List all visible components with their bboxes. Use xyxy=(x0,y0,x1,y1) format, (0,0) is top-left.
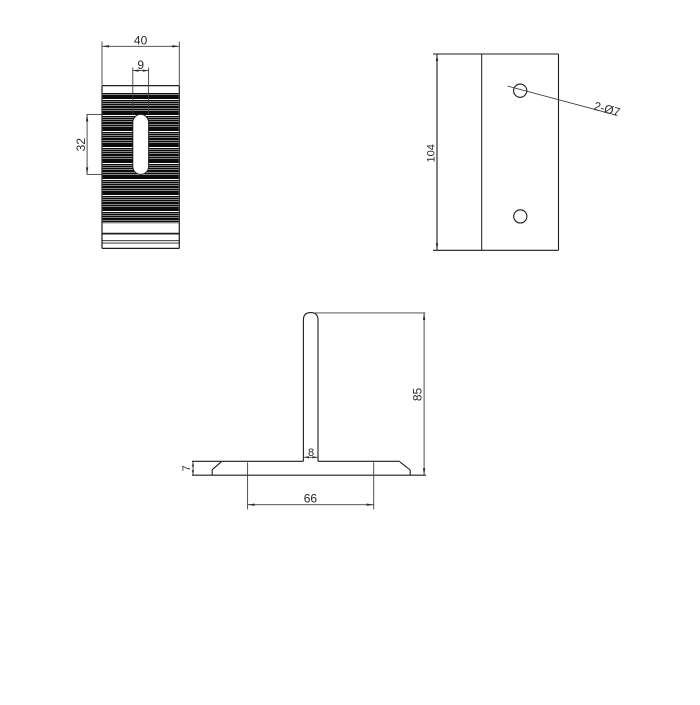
svg-text:32: 32 xyxy=(74,138,88,152)
svg-text:40: 40 xyxy=(134,33,148,47)
svg-text:8: 8 xyxy=(308,447,314,459)
svg-text:85: 85 xyxy=(410,388,424,402)
svg-text:7: 7 xyxy=(181,465,193,471)
svg-text:104: 104 xyxy=(426,144,438,162)
svg-text:66: 66 xyxy=(304,491,318,505)
svg-text:9: 9 xyxy=(137,58,144,72)
svg-text:2-Ø7: 2-Ø7 xyxy=(592,99,622,120)
